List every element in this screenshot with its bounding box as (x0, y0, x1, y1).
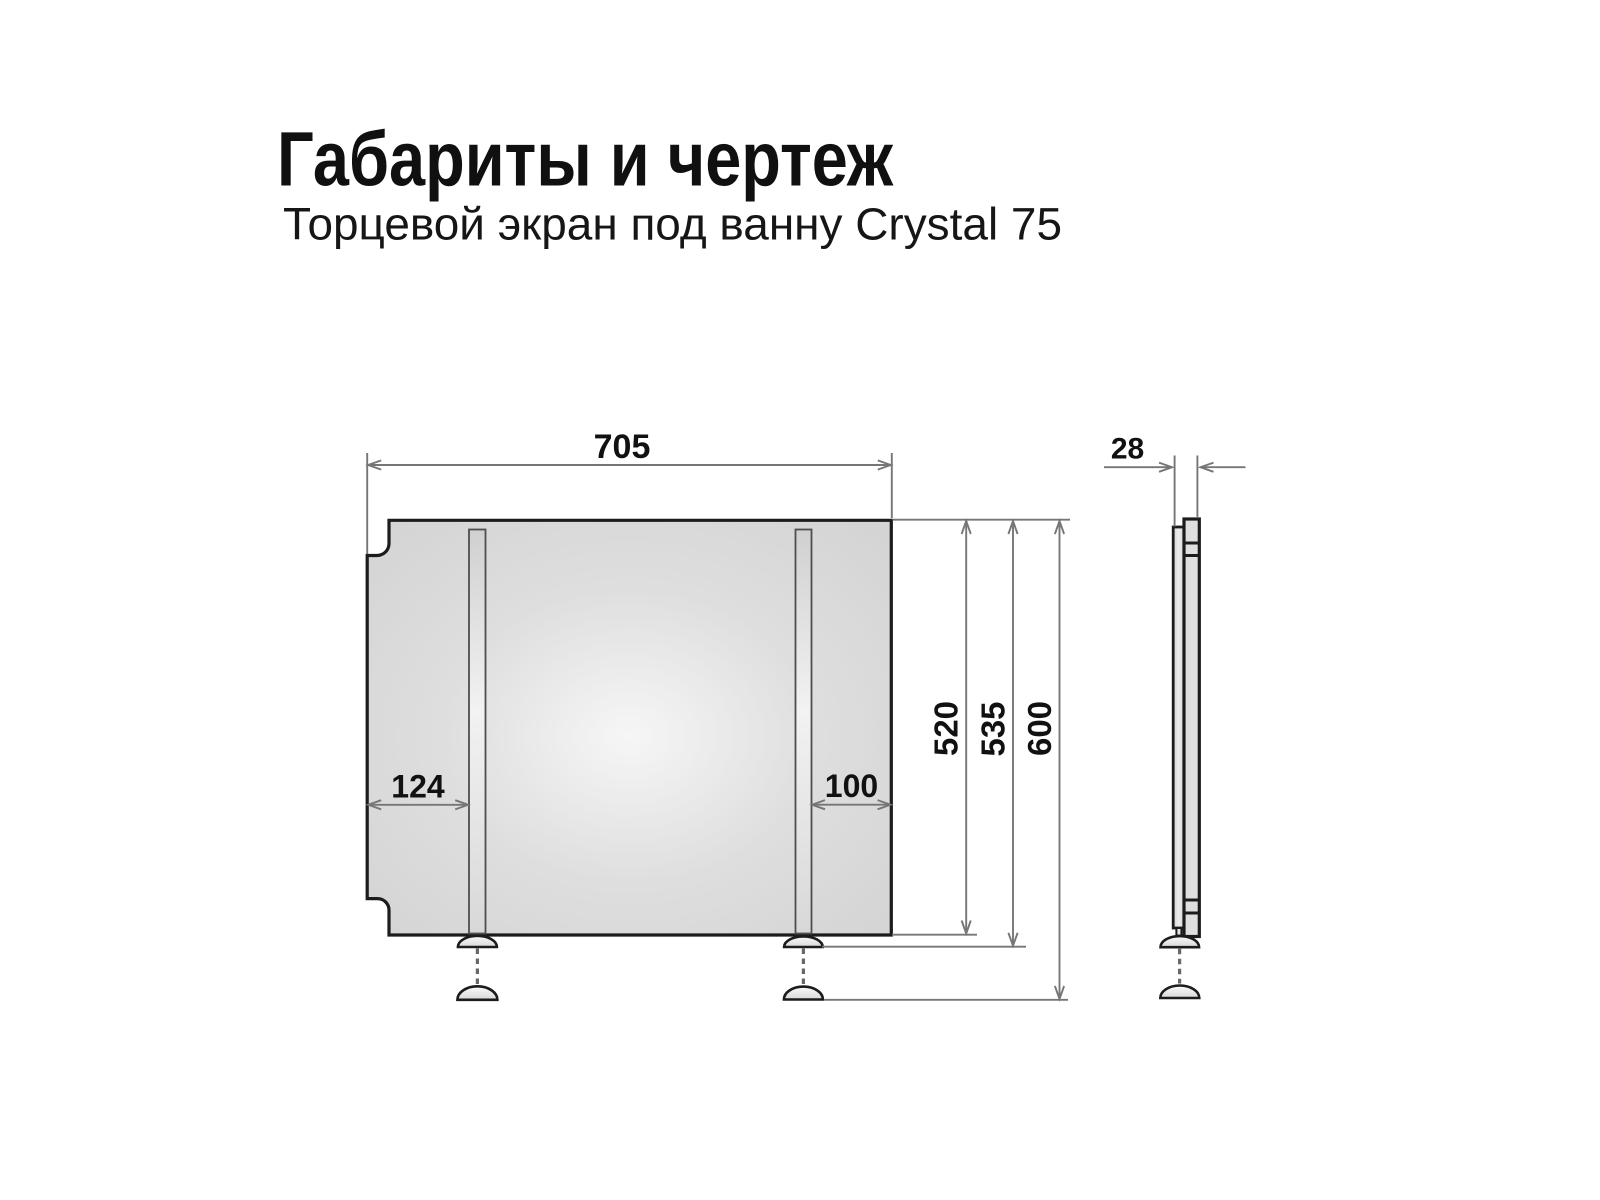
svg-text:520: 520 (927, 701, 964, 756)
svg-text:Торцевой экран под ванну Cryst: Торцевой экран под ванну Crystal 75 (283, 198, 1062, 249)
svg-text:124: 124 (391, 769, 445, 805)
svg-text:100: 100 (825, 768, 878, 804)
svg-text:535: 535 (974, 701, 1011, 756)
svg-text:28: 28 (1111, 433, 1144, 466)
svg-text:705: 705 (594, 428, 651, 466)
svg-text:Габариты и чертеж: Габариты и чертеж (277, 117, 894, 203)
svg-text:600: 600 (1021, 701, 1058, 756)
